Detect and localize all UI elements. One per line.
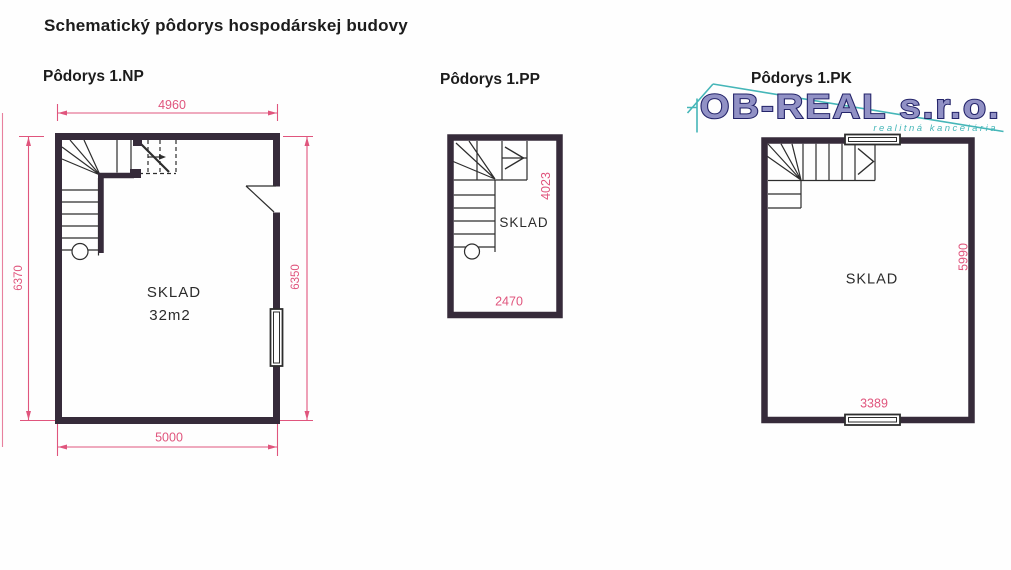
np-staircase xyxy=(62,136,176,260)
np-room-area: 32m2 xyxy=(149,307,191,324)
pk-window-bottom xyxy=(845,415,900,426)
np-stair-newel-post xyxy=(72,244,88,260)
floorplan-page: Schematický pôdorys hospodárskej budovy … xyxy=(0,0,1011,570)
floorplan-np: SKLAD 32m2 4960 5000 6370 6350 xyxy=(3,98,314,456)
floorplan-pk: SKLAD 5990 3389 xyxy=(764,135,972,426)
np-room-label: SKLAD xyxy=(147,284,201,301)
pk-stair-direction-arrow xyxy=(858,149,874,175)
logo-company-name: OB-REAL s.r.o. xyxy=(700,88,1001,126)
pk-window-top xyxy=(845,135,900,145)
np-outer-walls xyxy=(55,133,280,424)
pk-dim-bottom: 3389 xyxy=(860,397,888,411)
pp-dim-bottom: 2470 xyxy=(495,295,523,309)
floorplan-drawing: OB-REAL s.r.o. realitná kancelária xyxy=(0,0,1011,570)
pk-staircase xyxy=(764,144,875,208)
plan-pk-title: Pôdorys 1.PK xyxy=(751,70,852,88)
np-door xyxy=(246,186,276,212)
np-stair-direction-arrow xyxy=(159,154,166,160)
pp-dim-right: 4023 xyxy=(539,172,553,200)
pp-stair-newel-post xyxy=(465,244,480,259)
pk-room-label: SKLAD xyxy=(846,272,899,288)
np-dim-top: 4960 xyxy=(158,98,186,112)
company-logo: OB-REAL s.r.o. realitná kancelária xyxy=(687,84,1004,134)
np-dim-left: 6370 xyxy=(13,265,25,291)
pk-dim-right: 5990 xyxy=(957,243,971,271)
pp-staircase xyxy=(452,141,527,259)
np-dim-right: 6350 xyxy=(290,264,302,290)
np-dim-bottom: 5000 xyxy=(155,431,183,445)
logo-tagline: realitná kancelária xyxy=(873,123,998,134)
floorplan-pp: SKLAD 4023 2470 xyxy=(451,138,560,316)
pp-room-label: SKLAD xyxy=(499,215,548,230)
np-window xyxy=(271,309,283,366)
